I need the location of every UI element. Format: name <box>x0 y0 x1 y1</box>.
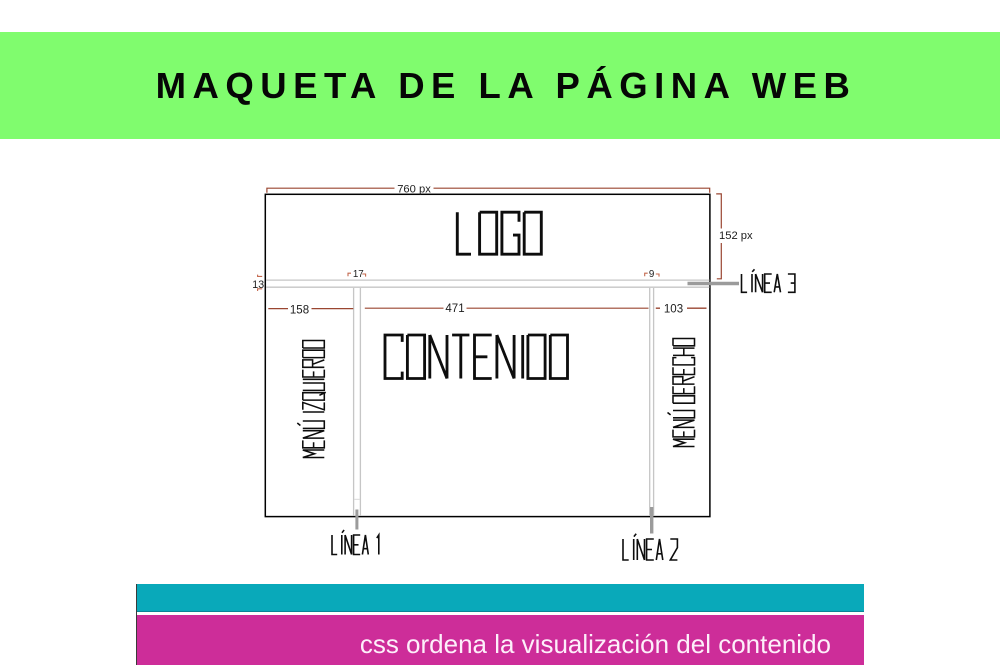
svg-text:13: 13 <box>252 279 264 291</box>
svg-text:471: 471 <box>445 303 464 315</box>
svg-text:158: 158 <box>290 305 309 317</box>
svg-text:9: 9 <box>649 269 654 280</box>
svg-text:17: 17 <box>353 269 364 280</box>
svg-text:152 px: 152 px <box>719 230 753 242</box>
svg-text:103: 103 <box>664 304 683 316</box>
svg-text:760 px: 760 px <box>397 184 431 196</box>
